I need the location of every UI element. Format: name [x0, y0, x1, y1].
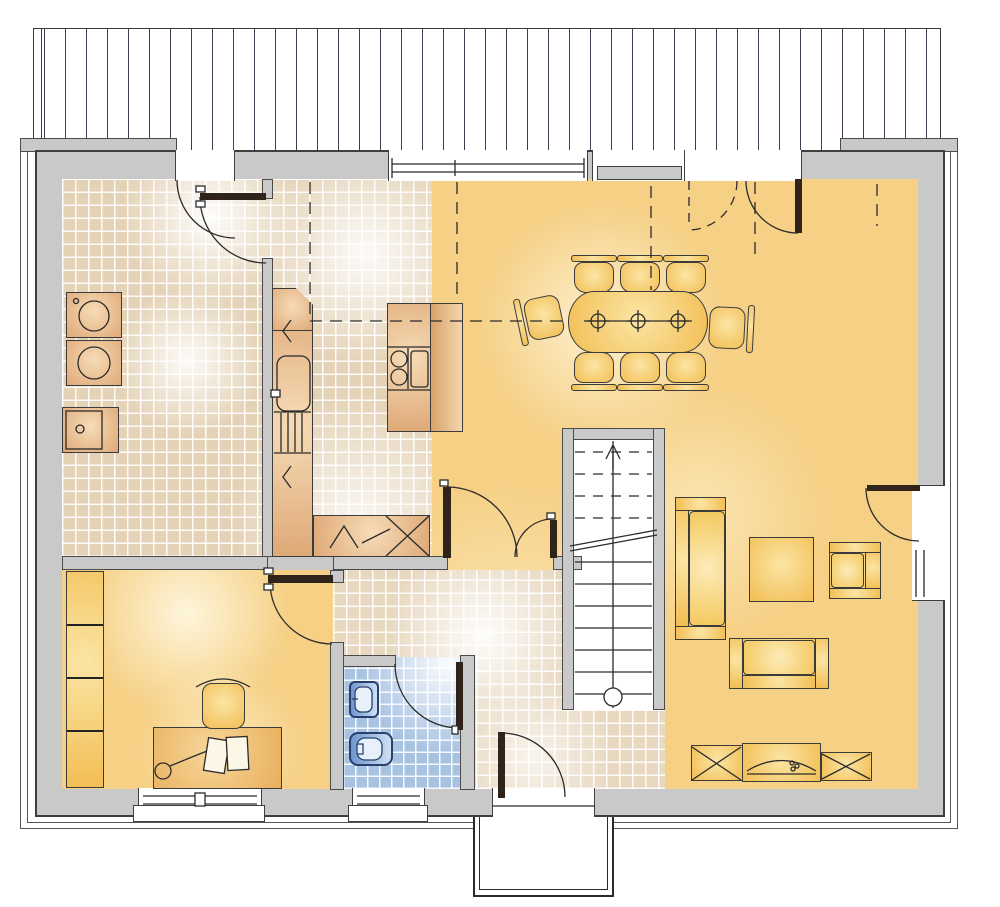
door-leaf-terrace-right [867, 485, 920, 491]
wc-toilet [349, 732, 393, 766]
dining-table [568, 291, 708, 353]
dining-chair [666, 262, 706, 293]
dining-chair [666, 352, 706, 383]
kitchen-island-cabinets [387, 303, 431, 432]
door-leaf-hwr-kochen [200, 193, 266, 200]
bookshelf-divider [67, 624, 103, 626]
door-leaf-wohnen-diele [550, 520, 557, 558]
wc-window-sill [348, 805, 428, 822]
door-leaf-kochen-diele [443, 487, 451, 558]
dining-chair [620, 352, 660, 383]
dining-chair [663, 255, 709, 262]
door-leaf-wc [456, 662, 463, 730]
wall-stair-left [562, 428, 574, 710]
wall-buero-diele [330, 642, 344, 790]
kitchen-window [388, 150, 588, 181]
wall-hwr-buero [62, 556, 268, 570]
armchair [829, 542, 881, 599]
dining-chair [617, 255, 663, 262]
dining-chair [620, 262, 660, 293]
coffee-table [749, 537, 814, 602]
hwr-exterior-door-opening [175, 150, 235, 181]
tv-board [742, 743, 821, 782]
dining-chair [704, 300, 757, 357]
kitchen-counter-bottom [313, 515, 430, 557]
dryer [66, 340, 122, 386]
laundry-sink [62, 407, 119, 453]
wc-sink [349, 681, 379, 718]
floor-wc [343, 657, 468, 789]
dining-chair [574, 262, 614, 293]
door-leaf-terrace-top [795, 179, 802, 233]
bookshelf [66, 571, 104, 788]
sideboard-cabinet-left [691, 745, 743, 781]
desk-chair [202, 683, 245, 729]
wall-stair-right [653, 428, 665, 710]
sideboard-cabinet-right [821, 752, 872, 781]
stairwell-floor [574, 440, 653, 710]
bookshelf-divider [67, 677, 103, 679]
wall-kochen-diele [333, 556, 448, 570]
dining-window-panel [597, 166, 682, 180]
kitchen-island-counter [430, 303, 463, 432]
dining-chair [617, 384, 663, 391]
washing-machine [66, 292, 122, 338]
entrance-porch-inner [479, 817, 608, 890]
terrace-door-window-right [912, 485, 945, 601]
roof-overhang-band [33, 28, 941, 152]
desk [153, 727, 282, 789]
door-leaf-entrance [498, 732, 505, 798]
dining-chair [512, 286, 572, 349]
dining-chair [663, 384, 709, 391]
kitchen-counter-run [272, 330, 313, 557]
dining-chair [571, 384, 617, 391]
sofa-horizontal [729, 638, 829, 689]
wall-wc-top [343, 655, 396, 667]
sofa-vertical [675, 497, 726, 640]
wall-stair-top [562, 428, 665, 440]
door-leaf-buero [268, 575, 333, 583]
terrace-door-opening [684, 150, 802, 181]
bookshelf-divider [67, 730, 103, 732]
entrance-door-opening [492, 788, 595, 817]
dining-chair [574, 352, 614, 383]
dining-chair [571, 255, 617, 262]
floor-plan [0, 0, 1000, 907]
buero-window-sill [133, 805, 265, 822]
